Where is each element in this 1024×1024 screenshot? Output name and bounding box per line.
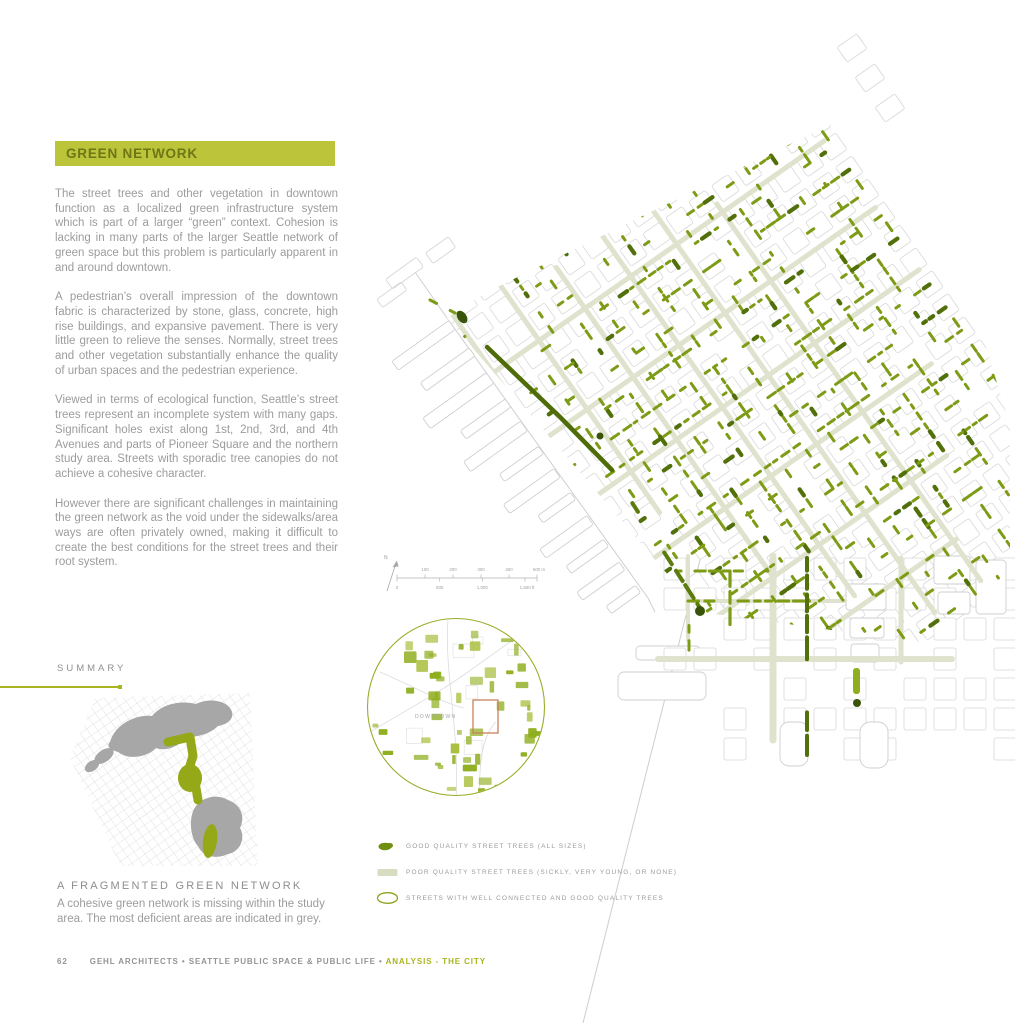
- legend-label: STREETS WITH WELL CONNECTED AND GOOD QUA…: [406, 895, 664, 902]
- svg-text:500: 500: [436, 585, 444, 590]
- paragraph-2: A pedestrian’s overall impression of the…: [55, 290, 338, 378]
- legend-label: POOR QUALITY STREET TREES (SICKLY, VERY …: [406, 869, 677, 876]
- svg-text:N: N: [384, 555, 388, 561]
- poor-street-band-icon: [376, 866, 406, 879]
- page-footer: 62GEHL ARCHITECTS • SEATTLE PUBLIC SPACE…: [57, 957, 486, 966]
- svg-text:0: 0: [396, 585, 399, 590]
- svg-text:500 m: 500 m: [533, 567, 546, 572]
- connected-street-ellipse-icon: [376, 891, 406, 905]
- svg-text:400: 400: [505, 567, 513, 572]
- svg-text:1,500 ft: 1,500 ft: [520, 585, 535, 590]
- map-caption-title: A FRAGMENTED GREEN NETWORK: [57, 880, 302, 892]
- downtown-extent-box: [473, 700, 498, 733]
- svg-text:300: 300: [477, 567, 485, 572]
- scale-labels: 100 200 300 400 500 m 0 500 1,000 1,500 …: [396, 567, 546, 590]
- summary-fragmented-network-map: [50, 688, 265, 878]
- city-locator-inset-map: DOWNTOWN: [360, 612, 555, 807]
- svg-text:1,000: 1,000: [477, 585, 489, 590]
- summary-label: SUMMARY: [57, 663, 126, 674]
- paragraph-1: The street trees and other vegetation in…: [55, 187, 338, 275]
- good-trees-south: [676, 558, 861, 755]
- footer-text: GEHL ARCHITECTS • SEATTLE PUBLIC SPACE &…: [90, 957, 386, 966]
- paragraph-3: Viewed in terms of ecological function, …: [55, 393, 338, 481]
- page-title: GREEN NETWORK: [55, 141, 335, 166]
- legend-row-poor-trees: POOR QUALITY STREET TREES (SICKLY, VERY …: [376, 859, 677, 885]
- scale-bar: N 100 200 300 400 500 m 0 500 1,000 1,50…: [375, 550, 550, 598]
- svg-text:100: 100: [421, 567, 429, 572]
- map-caption-body: A cohesive green network is missing with…: [57, 897, 329, 926]
- article-text: The street trees and other vegetation in…: [55, 187, 338, 585]
- legend-row-connected-streets: STREETS WITH WELL CONNECTED AND GOOD QUA…: [376, 885, 677, 911]
- page-number: 62: [57, 957, 68, 966]
- legend-label: GOOD QUALITY STREET TREES (ALL SIZES): [406, 843, 587, 850]
- poor-streets-south: [658, 556, 952, 740]
- footer-section-label: ANALYSIS - THE CITY: [386, 957, 486, 966]
- south-landmark-outlines: [780, 556, 1006, 768]
- downtown-label: DOWNTOWN: [415, 714, 456, 720]
- map-legend: GOOD QUALITY STREET TREES (ALL SIZES) PO…: [376, 833, 677, 911]
- legend-row-good-trees: GOOD QUALITY STREET TREES (ALL SIZES): [376, 833, 677, 859]
- scale-ruler: [397, 575, 537, 582]
- deficient-areas: [83, 701, 243, 857]
- pioneer-square-grid: [664, 558, 1016, 760]
- svg-text:200: 200: [449, 567, 457, 572]
- good-trees-blob-icon: [376, 840, 406, 853]
- paragraph-4: However there are significant challenges…: [55, 497, 338, 571]
